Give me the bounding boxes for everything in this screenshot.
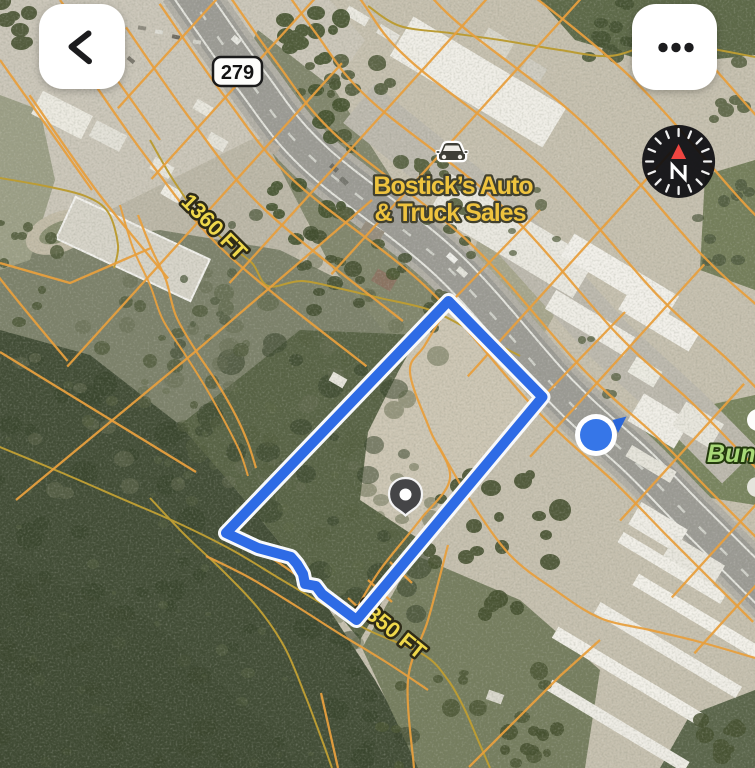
- svg-text:Buni: Buni: [707, 440, 755, 468]
- svg-text:& Truck Sales: & Truck Sales: [375, 199, 526, 227]
- svg-text:279: 279: [221, 62, 254, 84]
- svg-text:Bostick’s Auto: Bostick’s Auto: [373, 172, 533, 200]
